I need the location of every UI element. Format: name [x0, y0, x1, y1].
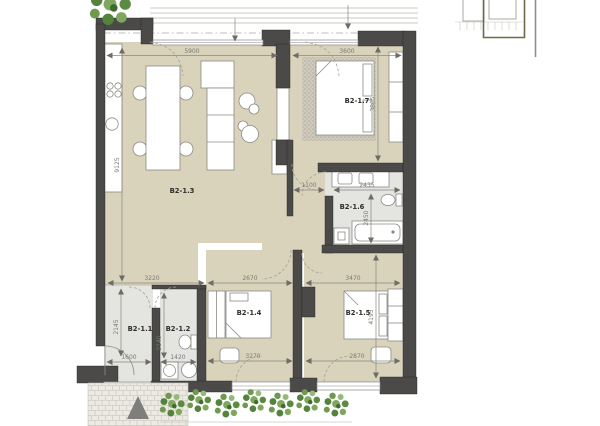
floor-plan-page: 5900 3600 9125 3805 1100 2435 2450 3220 … — [0, 0, 600, 426]
dim-bed5-bottom: 2870 — [349, 353, 364, 360]
room-label-b2-1-7: B2-1.7 — [345, 97, 370, 105]
dim-hall-height: 2145 — [113, 319, 120, 334]
dim-living-top: 5900 — [184, 48, 199, 55]
dim-wc-bottom: 1420 — [170, 354, 185, 361]
dim-hall-zone-top: 3220 — [144, 275, 159, 282]
chair — [179, 142, 193, 156]
floor-plan-svg: 5900 3600 9125 3805 1100 2435 2450 3220 … — [0, 0, 600, 426]
dim-bed5-top: 3470 — [345, 275, 360, 282]
dim-bed7-height: 3805 — [370, 96, 377, 111]
dim-bath-height: 2450 — [363, 210, 370, 225]
room-label-b2-1-1: B2-1.1 — [128, 325, 153, 333]
dim-corridor-width: 1100 — [301, 182, 316, 189]
room-label-b2-1-4: B2-1.4 — [237, 309, 262, 317]
room-label-b2-1-2: B2-1.2 — [166, 325, 191, 333]
dim-wc-height: 2140 — [156, 335, 163, 350]
bathtub — [352, 221, 403, 244]
room-label-b2-1-3: B2-1.3 — [170, 187, 195, 195]
wc-basin — [182, 363, 197, 378]
wardrobe-b2-1-5 — [388, 289, 403, 341]
washer-bath — [334, 228, 349, 244]
toilet-wc — [179, 335, 197, 349]
room-label-b2-1-6: B2-1.6 — [340, 203, 365, 211]
chair — [179, 86, 193, 100]
chair — [133, 142, 147, 156]
sliding-door-panel — [277, 88, 289, 140]
dim-entry-bottom: 1600 — [121, 354, 136, 361]
dim-bed4-top: 2670 — [242, 275, 257, 282]
dim-bed4-bottom: 3270 — [245, 353, 260, 360]
dim-bed7-top: 3600 — [339, 48, 354, 55]
toilet-bath — [381, 194, 402, 206]
armchair-b2-1-5 — [371, 347, 391, 363]
dining-table — [146, 66, 180, 170]
chair — [133, 86, 147, 100]
wardrobe-b2-1-7 — [389, 52, 403, 142]
dim-bath-width: 2435 — [359, 182, 374, 189]
dim-living-height: 9125 — [114, 157, 121, 172]
floor-corridor — [290, 163, 326, 253]
room-label-b2-1-5: B2-1.5 — [346, 309, 371, 317]
